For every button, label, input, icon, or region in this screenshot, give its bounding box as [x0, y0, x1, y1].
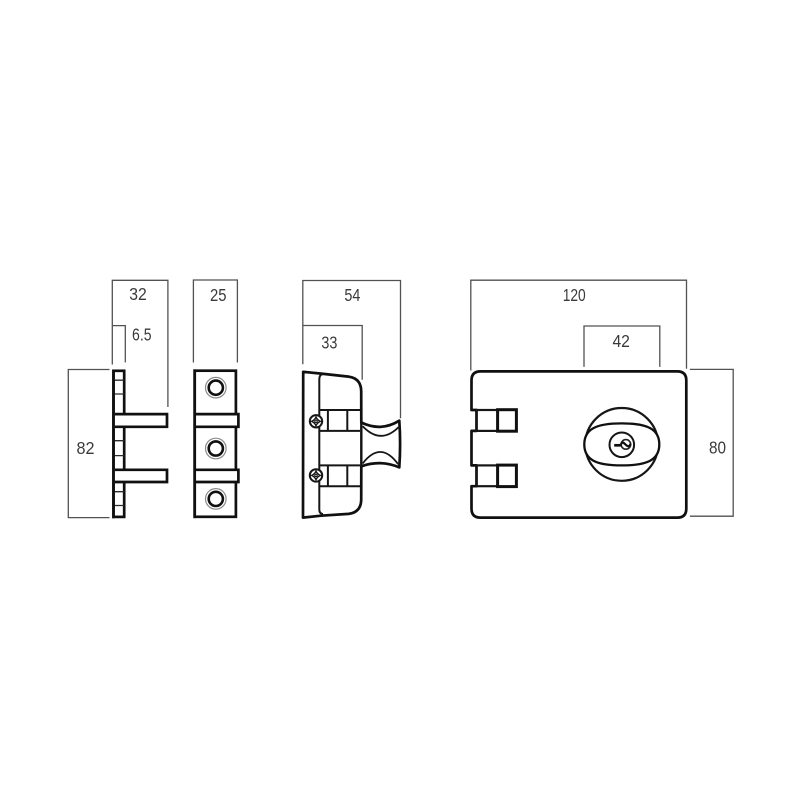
svg-text:25: 25 [210, 285, 227, 305]
svg-text:33: 33 [321, 332, 337, 352]
svg-text:6.5: 6.5 [132, 324, 152, 344]
svg-text:82: 82 [77, 438, 95, 458]
svg-text:120: 120 [563, 285, 586, 305]
svg-text:54: 54 [344, 285, 360, 305]
svg-text:42: 42 [612, 331, 630, 351]
svg-text:80: 80 [709, 437, 726, 457]
svg-text:32: 32 [129, 284, 147, 304]
